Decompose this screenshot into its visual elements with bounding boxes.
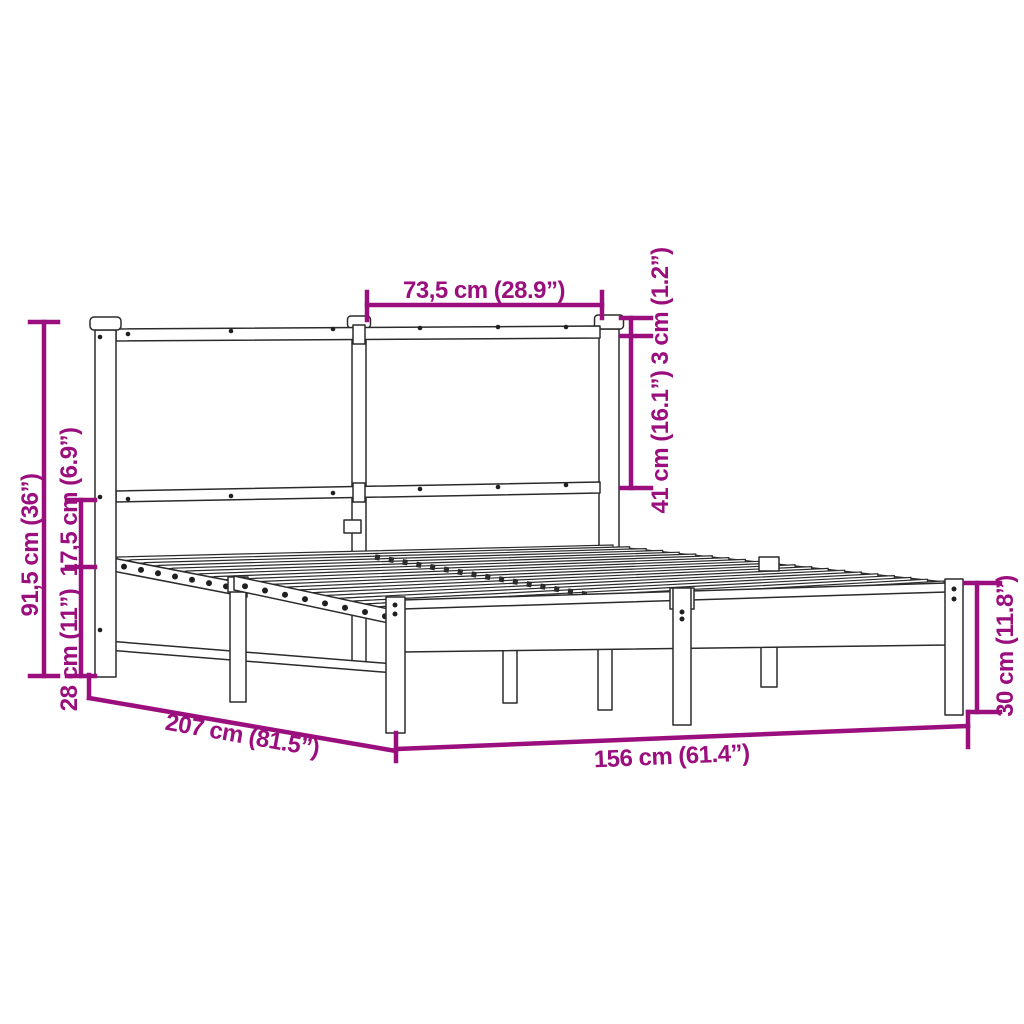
dimension-foot-height: 30 cm (11.8”) bbox=[965, 575, 1019, 717]
foot-end bbox=[386, 579, 963, 733]
dim-label-rail-thickness: 3 cm (1.2”) bbox=[647, 247, 674, 364]
rail-hole bbox=[242, 583, 248, 589]
diagram-svg: 73,5 cm (28.9”) 3 cm (1.2”) 41 cm (16.1”… bbox=[0, 0, 1024, 1024]
dim-label-panel-height: 41 cm (16.1”) bbox=[647, 371, 674, 514]
near-corner-leg bbox=[386, 597, 405, 733]
rail-hole bbox=[302, 596, 308, 602]
headboard-screws bbox=[126, 325, 569, 502]
rail-hole bbox=[206, 580, 212, 586]
headboard-right-post bbox=[599, 329, 619, 548]
rail-hole bbox=[282, 592, 288, 598]
left-middle-leg bbox=[230, 584, 246, 702]
dimension-total-height: 91,5 cm (36”) bbox=[17, 322, 58, 676]
dim-label-rail-clearance: 17,5 cm (6.9”) bbox=[56, 427, 83, 576]
foot-middle-leg bbox=[673, 588, 691, 725]
rail-hole bbox=[121, 564, 127, 570]
bed-frame-dimension-diagram: 73,5 cm (28.9”) 3 cm (1.2”) 41 cm (16.1”… bbox=[0, 0, 1024, 1024]
dim-label-length: 207 cm (81.5”) bbox=[163, 709, 321, 763]
rail-hole bbox=[172, 574, 178, 580]
bed-drawing bbox=[90, 315, 963, 733]
headboard-left-post-cap bbox=[90, 317, 121, 330]
rail-hole bbox=[262, 588, 268, 594]
dimension-panel-width: 73,5 cm (28.9”) bbox=[367, 277, 602, 320]
headboard-left-post bbox=[95, 330, 116, 677]
rail-hole bbox=[189, 577, 195, 583]
dim-label-base-height: 28 cm (11”) bbox=[56, 589, 83, 712]
dimension-clearance-and-base: 17,5 cm (6.9”) 28 cm (11”) bbox=[56, 427, 95, 711]
middle-post-bottom-clamp bbox=[353, 483, 365, 502]
dimension-rail-and-panel-height: 3 cm (1.2”) 41 cm (16.1”) bbox=[621, 247, 674, 513]
rail-hole bbox=[155, 570, 161, 576]
middle-post-top-clamp bbox=[353, 325, 365, 344]
rail-hole bbox=[362, 609, 368, 615]
dim-label-total-height: 91,5 cm (36”) bbox=[17, 474, 44, 617]
dim-label-width: 156 cm (61.4”) bbox=[593, 740, 750, 774]
right-mid-leg-bracket bbox=[759, 557, 779, 571]
headboard-left-post-group bbox=[90, 317, 121, 677]
rail-hole bbox=[138, 567, 144, 573]
rail-hole bbox=[322, 600, 328, 606]
dim-label-foot-height: 30 cm (11.8”) bbox=[992, 575, 1019, 717]
dim-label-panel-width: 73,5 cm (28.9”) bbox=[403, 277, 565, 304]
rail-hole bbox=[342, 605, 348, 611]
centre-bar-head-bracket bbox=[344, 520, 361, 533]
